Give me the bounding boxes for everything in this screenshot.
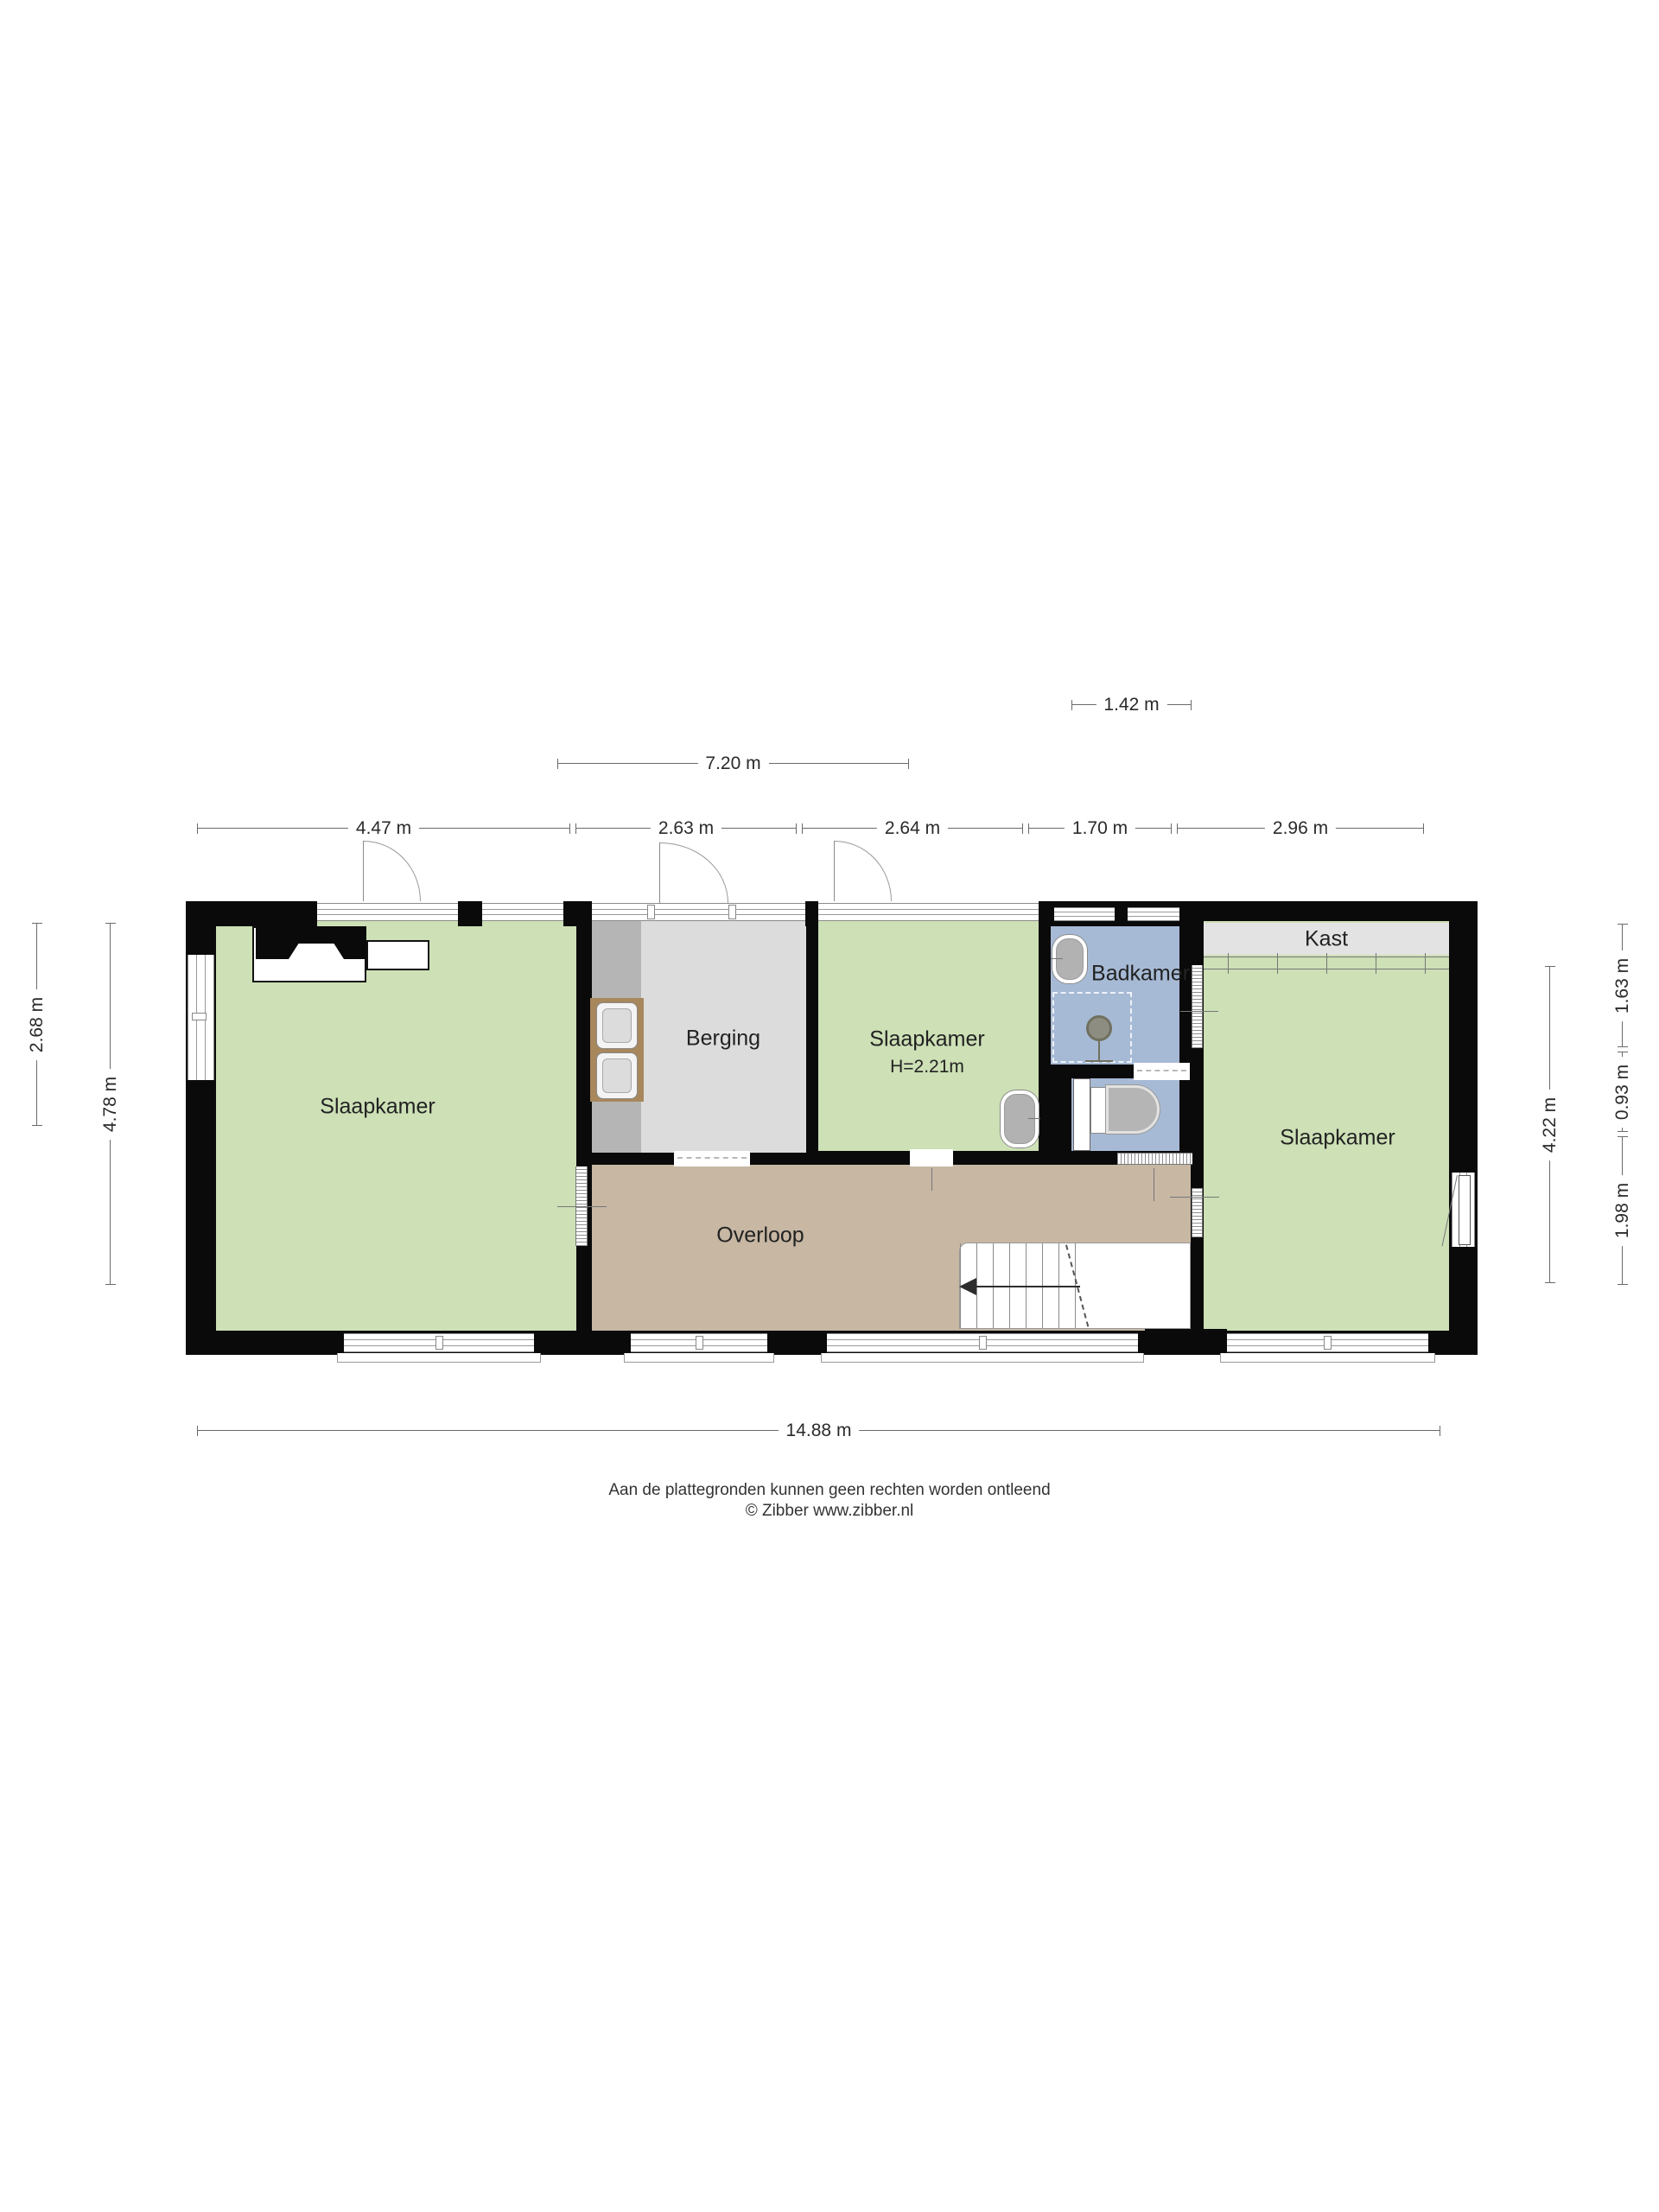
wall-bedroomleft-storage: [576, 901, 592, 1331]
label-storage: Berging: [686, 1027, 760, 1052]
window-mullion: [192, 1013, 207, 1020]
door-leaf-toilet: [1073, 1078, 1090, 1151]
dim-section-2: 2.63 m: [575, 828, 797, 829]
shower-head-icon: [1086, 1015, 1112, 1041]
wall-bedroommiddle-bathroom: [1039, 901, 1051, 1153]
dim-top-span: 7.20 m: [557, 763, 909, 764]
shower-valve: [1085, 1060, 1113, 1062]
wall-bathroom-east: [1179, 901, 1191, 1153]
window-bedroomright-west: [1192, 965, 1203, 1048]
sink-icon-bathroom: [1052, 935, 1087, 983]
dim-label: 2.64 m: [877, 818, 948, 839]
dim-bottom-total: 14.88 m: [197, 1430, 1440, 1431]
window-tick: [1180, 1011, 1218, 1012]
door-bathroom-toilet: [1134, 1063, 1190, 1080]
door-dash: [677, 1157, 747, 1159]
closet-rail-tick: [1277, 953, 1278, 974]
dim-label: 7.20 m: [697, 753, 768, 774]
dim-label: 14.88 m: [779, 1421, 860, 1441]
window-mullion: [728, 905, 736, 919]
closet-rail-tick: [1326, 953, 1327, 974]
shower-stem: [1098, 1041, 1100, 1060]
door-bedroommiddle-landing: [910, 1149, 953, 1166]
floor-plan: Slaapkamer Berging Slaapkamer H=2.21m Ba…: [0, 0, 1659, 2212]
dim-label: 0.93 m: [1612, 1056, 1633, 1127]
disclaimer-text: Aan de plattegronden kunnen geen rechten…: [0, 1481, 1659, 1500]
door-arc-bedroom-left: [364, 841, 421, 901]
label-bedroom-middle: Slaapkamer: [869, 1027, 984, 1052]
window-sill: [624, 1353, 774, 1363]
label-bathroom: Badkamer: [1091, 962, 1190, 987]
dim-top-offset: 1.42 m: [1071, 704, 1192, 705]
door-arc-storage: [660, 842, 728, 903]
wall-toilet-west: [1051, 1071, 1071, 1153]
label-landing: Overloop: [716, 1224, 804, 1249]
door-storage-landing: [674, 1151, 750, 1166]
dim-label: 1.63 m: [1612, 950, 1633, 1020]
dim-right-1: 1.63 m: [1622, 924, 1623, 1047]
dim-left-full: 4.78 m: [110, 923, 111, 1285]
door-bedroomright-landing: [1192, 1188, 1203, 1237]
sink-faucet: [1028, 1118, 1040, 1119]
washing-machine-icon: [596, 1002, 638, 1049]
label-ceiling-height: H=2.21m: [890, 1057, 964, 1077]
dim-label: 4.78 m: [100, 1068, 121, 1139]
window-mullion: [696, 1336, 703, 1350]
label-closet: Kast: [1305, 927, 1348, 952]
door-arc-bedroom-middle: [835, 841, 892, 901]
door-tick: [1154, 1168, 1154, 1201]
copyright-text: © Zibber www.zibber.nl: [0, 1502, 1659, 1521]
door-tick: [931, 1168, 932, 1191]
dim-section-4: 1.70 m: [1028, 828, 1172, 829]
door-dash: [1137, 1070, 1186, 1071]
dryer-icon: [596, 1052, 638, 1099]
stair-direction-line: [975, 1286, 1080, 1287]
dim-label: 2.96 m: [1265, 818, 1336, 839]
window-sill: [821, 1353, 1144, 1363]
dim-label: 4.22 m: [1540, 1089, 1560, 1160]
dim-right-inner: 4.22 m: [1549, 966, 1550, 1283]
door-tick: [1170, 1197, 1219, 1198]
window-bathroom-north-1: [1054, 907, 1115, 921]
chimney-shelf: [366, 940, 429, 970]
door-tick: [557, 1206, 607, 1207]
sink-icon-bedroom-middle: [1001, 1090, 1039, 1147]
dim-right-3: 1.98 m: [1622, 1136, 1623, 1285]
window-mullion: [1324, 1336, 1332, 1350]
wall-south-pier: [1145, 1329, 1227, 1355]
door-bathroom-landing: [1117, 1153, 1192, 1165]
dim-label: 1.70 m: [1065, 818, 1135, 839]
toilet-icon: [1106, 1085, 1160, 1134]
wall-north-right: [1191, 901, 1478, 921]
window-sill: [337, 1353, 541, 1363]
dim-section-1: 4.47 m: [197, 828, 570, 829]
closet-rail-tick: [1425, 953, 1426, 974]
window-north-band: [317, 903, 1039, 921]
dim-label: 1.98 m: [1612, 1175, 1633, 1246]
stair-direction-arrow-icon: [959, 1278, 976, 1295]
label-bedroom-right: Slaapkamer: [1280, 1126, 1395, 1151]
window-east-leaf: [1459, 1175, 1471, 1245]
dim-right-2: 0.93 m: [1622, 1052, 1623, 1132]
window-sill: [1220, 1353, 1435, 1363]
sink-faucet: [1051, 958, 1063, 959]
label-bedroom-left: Slaapkamer: [320, 1095, 435, 1120]
dim-section-5: 2.96 m: [1177, 828, 1424, 829]
dim-label: 2.68 m: [27, 988, 48, 1059]
dim-label: 4.47 m: [348, 818, 419, 839]
dim-section-3: 2.64 m: [802, 828, 1023, 829]
dim-left-upper: 2.68 m: [36, 923, 37, 1126]
dim-label: 2.63 m: [651, 818, 721, 839]
wall-north-pier-1: [458, 901, 482, 926]
closet-rail-tick: [1376, 953, 1376, 974]
wall-north-left: [186, 901, 317, 926]
wall-east: [1449, 901, 1478, 1355]
machine-door: [602, 1058, 632, 1093]
room-bedroom-left: [216, 921, 576, 1331]
closet-rail-tick: [1228, 953, 1229, 974]
window-mullion: [435, 1336, 443, 1350]
window-mullion: [979, 1336, 987, 1350]
window-mullion: [647, 905, 655, 919]
toilet-tank: [1090, 1087, 1106, 1134]
dim-label: 1.42 m: [1096, 695, 1166, 715]
machine-door: [602, 1008, 632, 1043]
wall-storage-bedroommiddle: [806, 918, 818, 1153]
